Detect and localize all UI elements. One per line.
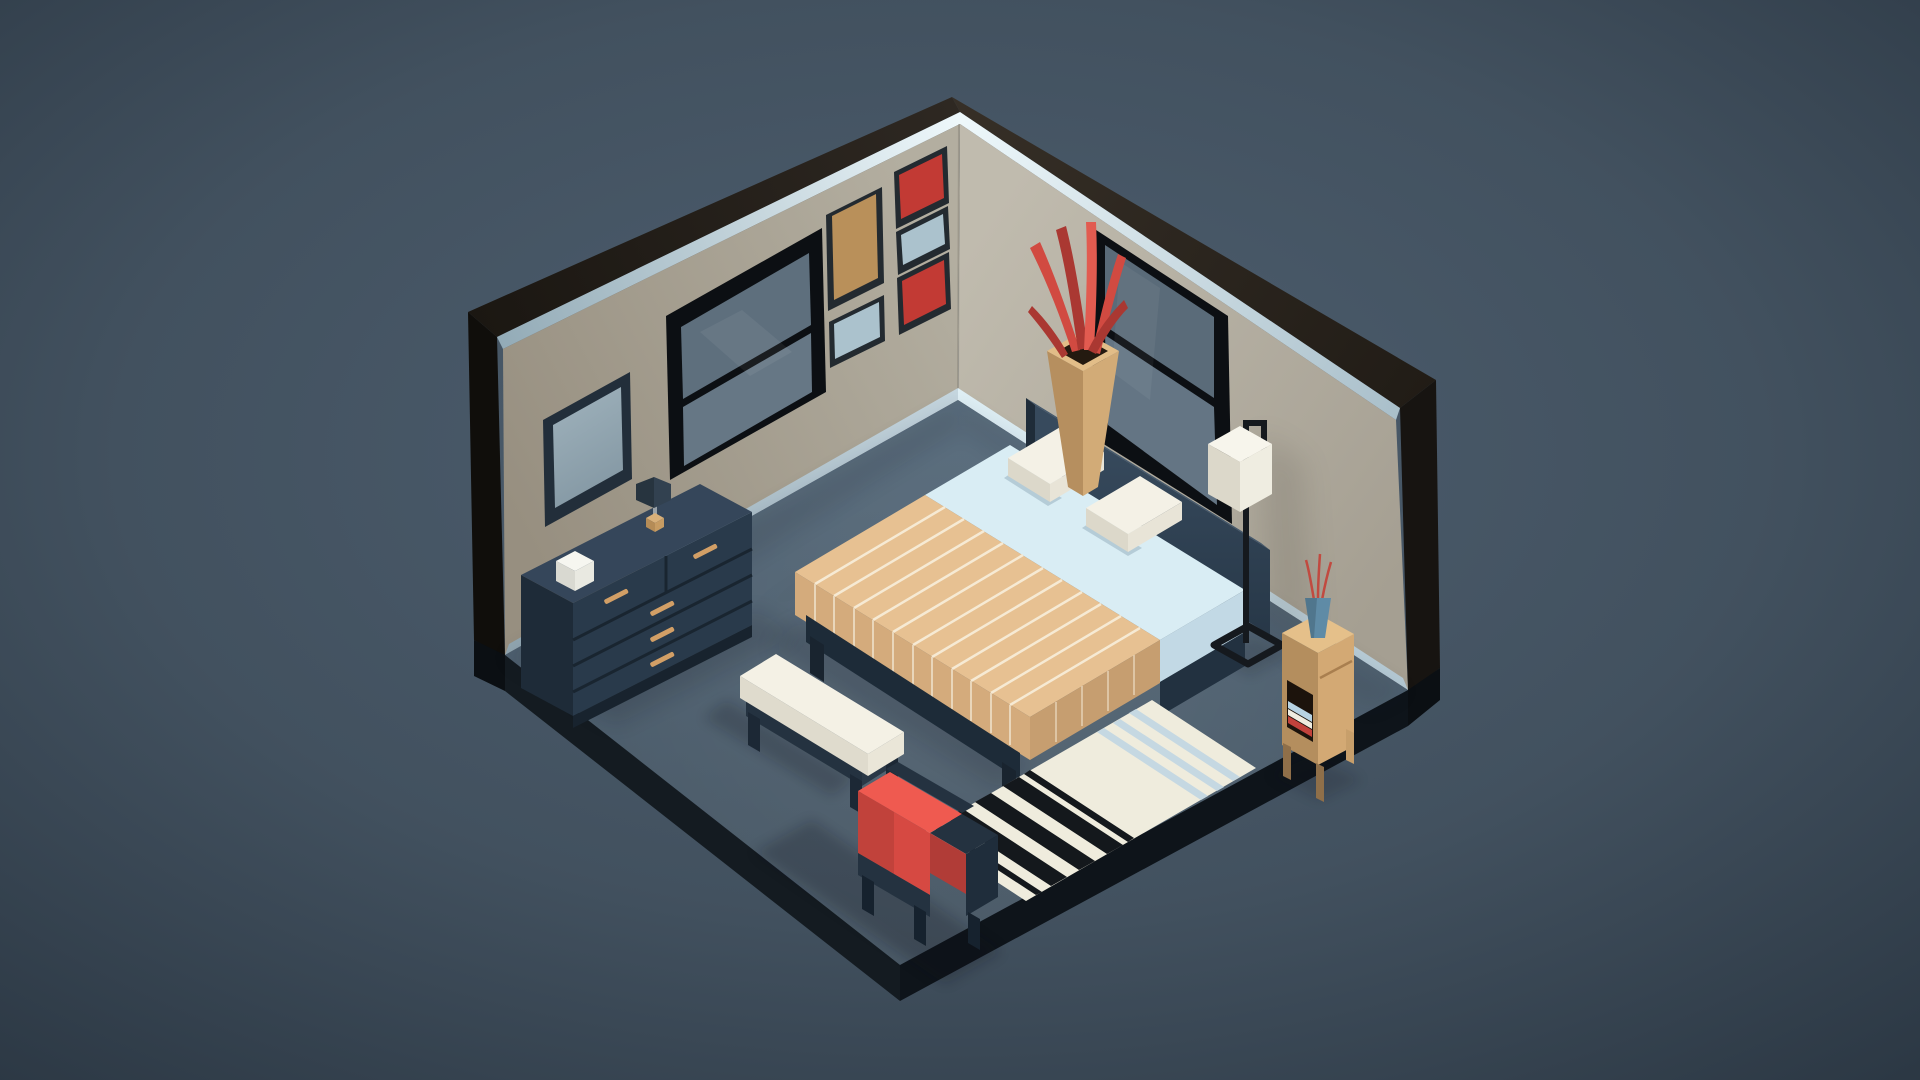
chair-leg2	[914, 905, 926, 946]
viewport-3d-bedroom	[0, 0, 1920, 1080]
chair-leg1	[862, 875, 874, 916]
nightstand-leg3	[1346, 729, 1354, 764]
nightstand-leg1	[1283, 743, 1291, 780]
bench-leg1	[748, 712, 760, 752]
wall-corner-line	[958, 124, 959, 400]
nightstand-leg2	[1316, 763, 1324, 802]
